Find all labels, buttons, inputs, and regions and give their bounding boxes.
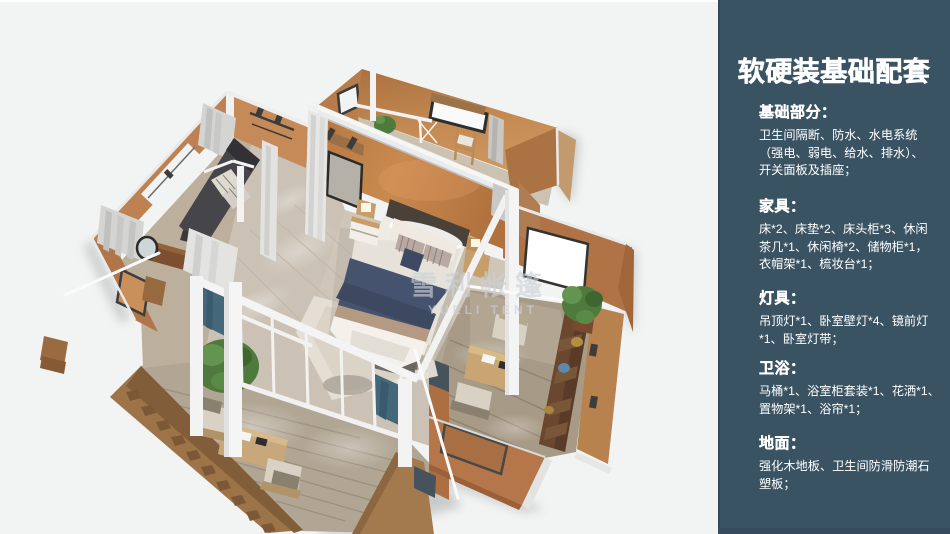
svg-text:YUELI TENT: YUELI TENT	[428, 303, 538, 317]
svg-text:雪利帐篷: 雪利帐篷	[410, 270, 550, 301]
